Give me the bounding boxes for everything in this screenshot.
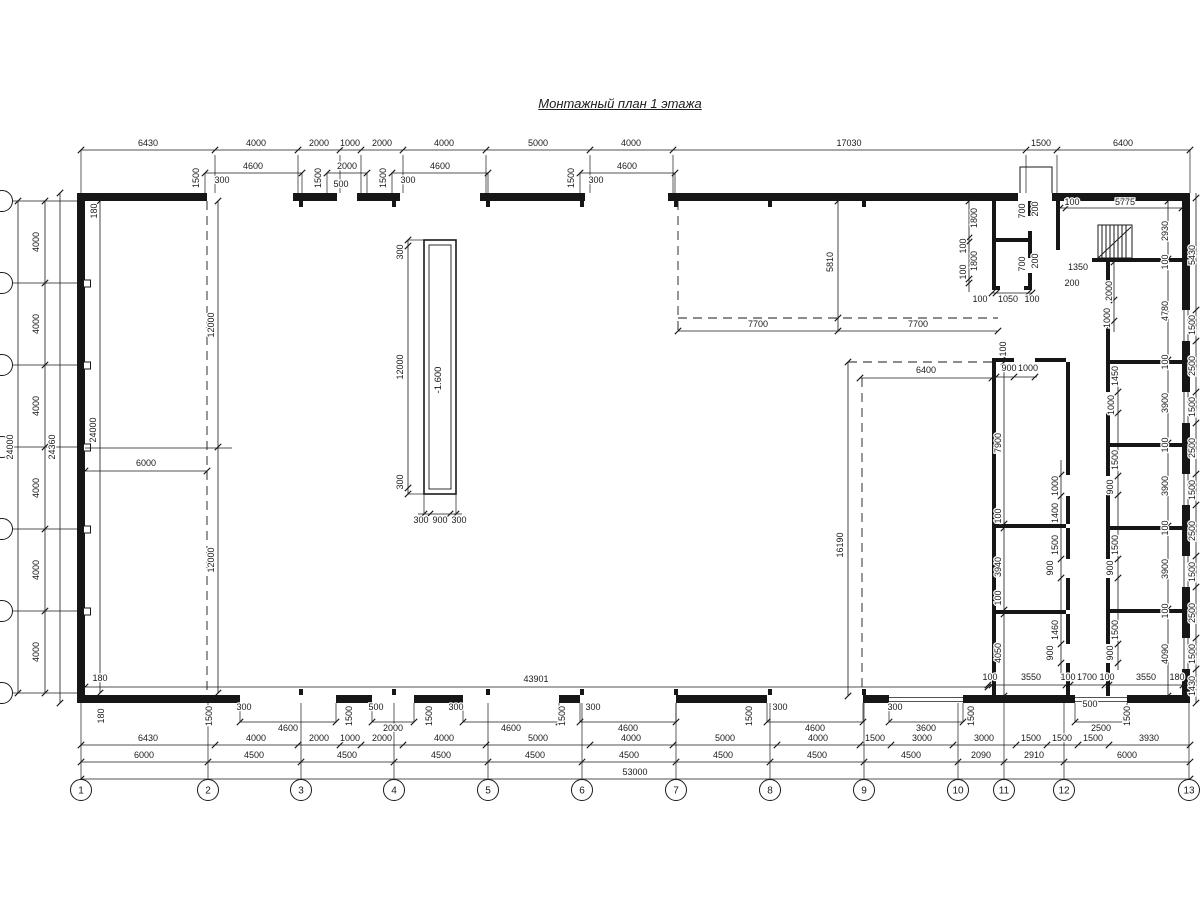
- dim-label: 300: [214, 175, 229, 185]
- axis-bubble-left: [0, 519, 13, 540]
- dim-label: 1500: [1110, 535, 1120, 555]
- column-mark: [674, 201, 678, 207]
- wall: [1024, 286, 1032, 290]
- dim-label: 1500: [1110, 620, 1120, 640]
- dim-label: 900: [1105, 560, 1115, 575]
- dim-label: 12000: [395, 354, 405, 379]
- dim-label: 1500: [424, 706, 434, 726]
- dim-label: 180: [89, 203, 99, 218]
- dim-label: 300: [395, 474, 405, 489]
- dim-label: 2000: [372, 733, 392, 743]
- column-mark: [299, 201, 303, 207]
- dim-label: 100: [1160, 437, 1170, 452]
- column-mark: [768, 689, 772, 695]
- dim-label: 6400: [916, 365, 936, 375]
- dim-label: 2500: [1187, 356, 1197, 376]
- wall: [1066, 496, 1070, 524]
- dim-label: 1500: [1187, 644, 1197, 664]
- dim-label: 2000: [337, 161, 357, 171]
- dim-label: 180: [1169, 672, 1184, 682]
- column-mark: [580, 201, 584, 207]
- wall: [1066, 578, 1070, 610]
- column-mark: [580, 689, 584, 695]
- dim-label: 7700: [748, 319, 768, 329]
- dim-label: 900: [1001, 363, 1016, 373]
- dim-label: 200: [1030, 253, 1040, 268]
- wall: [996, 238, 1030, 242]
- dim-label: 4000: [434, 138, 454, 148]
- dim-label: 3930: [1139, 733, 1159, 743]
- dim-label: 4000: [31, 314, 41, 334]
- dim-label: 1500: [1083, 733, 1103, 743]
- dim-label: 100: [958, 238, 968, 253]
- wall: [1066, 614, 1070, 644]
- column-mark: [84, 526, 91, 533]
- dim-label: 24000: [5, 434, 15, 459]
- wall: [559, 695, 580, 703]
- dim-label: 6430: [138, 138, 158, 148]
- dim-label: 4000: [31, 642, 41, 662]
- dim-label: 6000: [1117, 750, 1137, 760]
- dim-label: 100: [998, 341, 1008, 356]
- wall: [668, 193, 1018, 201]
- dim-label: 2500: [1187, 521, 1197, 541]
- dim-label: 7900: [993, 433, 1003, 453]
- dim-label: 100: [982, 672, 997, 682]
- dim-label: 100: [1024, 294, 1039, 304]
- axis-bubble-left: [0, 683, 13, 704]
- dim-label: 3550: [1021, 672, 1041, 682]
- dim-label: 4600: [618, 723, 638, 733]
- axis-bubble-left: [0, 355, 13, 376]
- dim-label: 1000: [340, 138, 360, 148]
- entrance-vestibule: [1020, 167, 1052, 193]
- dim-label: 12000: [206, 547, 216, 572]
- dim-label: 1500: [566, 168, 576, 188]
- dim-label: 500: [368, 702, 383, 712]
- dim-label: 1000: [1106, 395, 1116, 415]
- axis-number-8: 8: [767, 786, 773, 797]
- dim-label: 100: [1160, 254, 1170, 269]
- dim-label: 300: [887, 702, 902, 712]
- dim-label: 7700: [908, 319, 928, 329]
- dim-label: 1450: [1110, 366, 1120, 386]
- axis-number-12: 12: [1058, 786, 1070, 797]
- dim-label: 300: [772, 702, 787, 712]
- dim-label: 4000: [31, 560, 41, 580]
- dim-label: 2000: [372, 138, 392, 148]
- column-mark: [84, 280, 91, 287]
- dim-label: 6400: [1113, 138, 1133, 148]
- dim-label: 2000: [309, 138, 329, 148]
- dim-label: 4600: [243, 161, 263, 171]
- column-mark: [84, 444, 91, 451]
- column-mark: [392, 201, 396, 207]
- dim-label: 1350: [1068, 262, 1088, 272]
- dim-label: 3550: [1136, 672, 1156, 682]
- axis-number-1: 1: [78, 786, 84, 797]
- dim-label: 4600: [617, 161, 637, 171]
- dim-label: 4500: [619, 750, 639, 760]
- dim-label: 1500: [1050, 535, 1060, 555]
- dim-label: 2910: [1024, 750, 1044, 760]
- dim-label: 4000: [31, 396, 41, 416]
- dim-label: 900: [432, 515, 447, 525]
- column-mark: [392, 689, 396, 695]
- dim-label: 1500: [378, 168, 388, 188]
- dim-label: 100: [1160, 520, 1170, 535]
- dim-label: 100: [993, 508, 1003, 523]
- axis-bubble-left: [0, 601, 13, 622]
- dim-label: 12000: [206, 312, 216, 337]
- dim-label: 1500: [865, 733, 885, 743]
- dim-label: 300: [451, 515, 466, 525]
- dim-label: 4000: [246, 138, 266, 148]
- dim-label: 4600: [501, 723, 521, 733]
- column-mark: [486, 689, 490, 695]
- wall: [1066, 528, 1070, 559]
- dim-label: 2090: [971, 750, 991, 760]
- dim-label: 1500: [344, 706, 354, 726]
- pit-level-label: -1.600: [433, 367, 444, 394]
- dim-label: 2000: [1104, 281, 1114, 301]
- dim-label: 1800: [969, 208, 979, 228]
- dim-label: 200: [1064, 278, 1079, 288]
- dim-label: 6000: [134, 750, 154, 760]
- axis-number-2: 2: [205, 786, 211, 797]
- dim-label: 1500: [744, 706, 754, 726]
- dim-label: 1500: [1187, 480, 1197, 500]
- dim-label: 17030: [836, 138, 861, 148]
- wall: [480, 193, 585, 201]
- dim-label: 3000: [974, 733, 994, 743]
- dim-label: 200: [1030, 201, 1040, 216]
- dim-label: 900: [1045, 560, 1055, 575]
- wall: [1066, 362, 1070, 475]
- dim-label: 300: [448, 702, 463, 712]
- dim-label: 4050: [993, 643, 1003, 663]
- dim-label: 4500: [244, 750, 264, 760]
- dim-label: 100: [958, 264, 968, 279]
- dim-label: 900: [1105, 479, 1115, 494]
- dim-label: 5430: [1187, 245, 1197, 265]
- dim-label: 500: [333, 179, 348, 189]
- dim-label: 5000: [715, 733, 735, 743]
- dim-label: 4000: [31, 478, 41, 498]
- dim-label: 4000: [808, 733, 828, 743]
- dim-label: 4500: [807, 750, 827, 760]
- dim-label: 5810: [825, 252, 835, 272]
- dim-label: 4500: [525, 750, 545, 760]
- dim-label: 2500: [1091, 723, 1111, 733]
- axis-number-5: 5: [485, 786, 491, 797]
- axis-number-13: 13: [1183, 786, 1195, 797]
- dim-label: 1500: [1052, 733, 1072, 743]
- dim-label: 1500: [966, 706, 976, 726]
- dim-label: 2000: [383, 723, 403, 733]
- dim-label: 1500: [1110, 450, 1120, 470]
- dim-label: 1000: [340, 733, 360, 743]
- dim-label: 2500: [1187, 438, 1197, 458]
- dim-label: 300: [395, 244, 405, 259]
- wall: [992, 201, 996, 290]
- dim-label: 3940: [993, 557, 1003, 577]
- wall: [293, 193, 337, 201]
- column-mark: [674, 689, 678, 695]
- axis-number-10: 10: [952, 786, 964, 797]
- wall: [1035, 358, 1066, 362]
- dim-label: 4000: [621, 733, 641, 743]
- dim-label: 3900: [1160, 559, 1170, 579]
- dim-label: 100: [972, 294, 987, 304]
- dim-label: 4000: [31, 232, 41, 252]
- dim-label: 2000: [309, 733, 329, 743]
- wall: [676, 695, 767, 703]
- column-mark: [862, 689, 866, 695]
- dim-label: 4000: [434, 733, 454, 743]
- dim-label: 1500: [204, 706, 214, 726]
- column-mark: [84, 608, 91, 615]
- dim-label: 53000: [622, 767, 647, 777]
- dim-label: 900: [1045, 645, 1055, 660]
- axis-number-7: 7: [673, 786, 679, 797]
- floorplan-svg: 12345678910111213-1.60064304000200010002…: [0, 0, 1200, 900]
- dim-label: 300: [400, 175, 415, 185]
- dim-label: 5775: [1115, 197, 1135, 207]
- dim-label: 1000: [1102, 308, 1112, 328]
- wall: [1127, 695, 1190, 703]
- dim-label: 4600: [278, 723, 298, 733]
- wall: [963, 695, 1075, 703]
- dim-label: 1000: [1018, 363, 1038, 373]
- dim-label: 6000: [136, 458, 156, 468]
- dim-label: 5000: [528, 138, 548, 148]
- dim-label: 100: [993, 590, 1003, 605]
- dim-label: 1800: [969, 251, 979, 271]
- wall: [992, 286, 1000, 290]
- wall: [863, 695, 889, 703]
- dim-label: 300: [588, 175, 603, 185]
- column-mark: [862, 201, 866, 207]
- wall: [1110, 609, 1182, 613]
- dim-label: 4500: [901, 750, 921, 760]
- dim-label: 100: [1064, 197, 1079, 207]
- axis-bubble-left: [0, 191, 13, 212]
- dim-label: 4500: [431, 750, 451, 760]
- dim-label: 4090: [1160, 644, 1170, 664]
- dim-label: 16190: [835, 532, 845, 557]
- dim-label: 1400: [1050, 503, 1060, 523]
- axis-number-9: 9: [861, 786, 867, 797]
- dim-label: 1500: [557, 706, 567, 726]
- dim-label: 3000: [912, 733, 932, 743]
- axis-number-4: 4: [391, 786, 397, 797]
- dim-label: 5000: [528, 733, 548, 743]
- wall: [1110, 443, 1182, 447]
- dim-label: 3900: [1160, 393, 1170, 413]
- dim-label: 2930: [1160, 221, 1170, 241]
- column-mark: [486, 201, 490, 207]
- column-mark: [299, 689, 303, 695]
- drawing-sheet: Монтажный план 1 этажа 12345678910111213…: [0, 0, 1200, 900]
- staircase: [1097, 225, 1132, 259]
- dim-label: 180: [96, 708, 106, 723]
- dim-label: 700: [1017, 256, 1027, 271]
- dim-label: 1460: [1050, 620, 1060, 640]
- axis-number-3: 3: [298, 786, 304, 797]
- wall: [85, 193, 207, 201]
- dim-label: 1500: [191, 168, 201, 188]
- dim-label: 24000: [88, 417, 98, 442]
- wall: [336, 695, 372, 703]
- dim-label: 2500: [1187, 603, 1197, 623]
- dim-label: 4000: [621, 138, 641, 148]
- dim-label: 4500: [713, 750, 733, 760]
- dim-label: 6430: [138, 733, 158, 743]
- dim-label: 300: [413, 515, 428, 525]
- dim-label: 500: [1082, 699, 1097, 709]
- dim-label: 1500: [1187, 315, 1197, 335]
- wall: [357, 193, 400, 201]
- dim-label: 3600: [916, 723, 936, 733]
- axis-number-6: 6: [579, 786, 585, 797]
- dim-label: 4500: [337, 750, 357, 760]
- dim-label: 100: [1160, 354, 1170, 369]
- dim-label: 700: [1017, 203, 1027, 218]
- dim-label: 4780: [1160, 301, 1170, 321]
- dim-label: 100: [1160, 603, 1170, 618]
- axis-bubble-left: [0, 273, 13, 294]
- dim-label: 1430: [1187, 676, 1197, 696]
- dim-label: 900: [1105, 645, 1115, 660]
- dim-label: 1700: [1077, 672, 1097, 682]
- dim-label: 1500: [1187, 562, 1197, 582]
- dim-label: 43901: [523, 674, 548, 684]
- dim-label: 24360: [47, 434, 57, 459]
- column-mark: [768, 201, 772, 207]
- dim-label: 1050: [998, 294, 1018, 304]
- axis-number-11: 11: [999, 786, 1010, 797]
- dim-label: 1500: [1031, 138, 1051, 148]
- dim-label: 1500: [1122, 706, 1132, 726]
- dim-label: 4600: [430, 161, 450, 171]
- dim-label: 4000: [246, 733, 266, 743]
- dim-label: 1500: [1187, 397, 1197, 417]
- wall: [1110, 360, 1182, 364]
- column-mark: [84, 362, 91, 369]
- dim-label: 1500: [313, 168, 323, 188]
- dim-label: 100: [1099, 672, 1114, 682]
- wall: [1110, 526, 1182, 530]
- dim-label: 3900: [1160, 476, 1170, 496]
- dim-label: 1500: [1021, 733, 1041, 743]
- dim-label: 100: [1060, 672, 1075, 682]
- dim-label: 180: [92, 673, 107, 683]
- dim-label: 1000: [1050, 476, 1060, 496]
- dim-label: 300: [236, 702, 251, 712]
- dim-label: 300: [585, 702, 600, 712]
- dim-label: 4600: [805, 723, 825, 733]
